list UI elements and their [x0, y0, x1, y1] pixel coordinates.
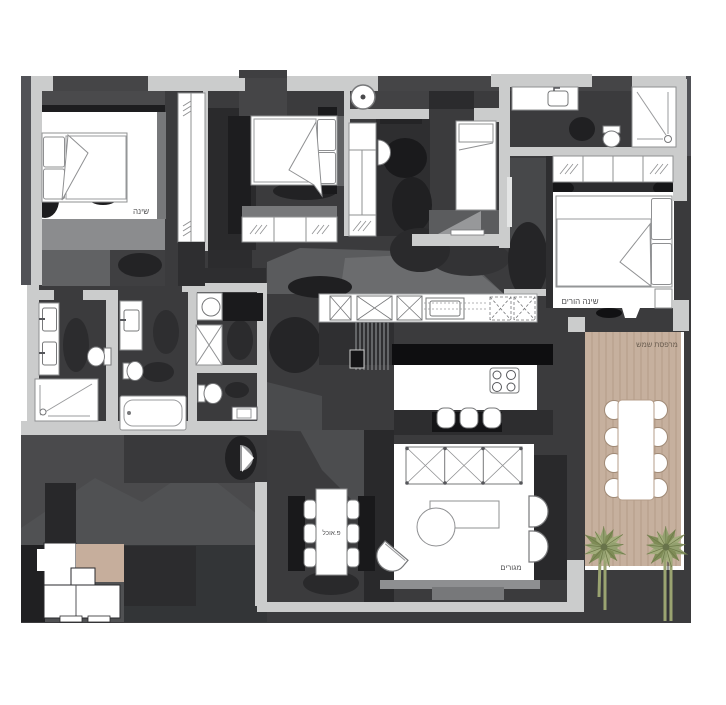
svg-text:שינה: שינה — [133, 207, 149, 216]
svg-text:מגורים: מגורים — [500, 563, 521, 572]
svg-text:מרפסת שמש: מרפסת שמש — [636, 340, 678, 349]
svg-text:פ.אוכל: פ.אוכל — [322, 529, 340, 537]
svg-text:שינה הורים: שינה הורים — [561, 297, 598, 306]
